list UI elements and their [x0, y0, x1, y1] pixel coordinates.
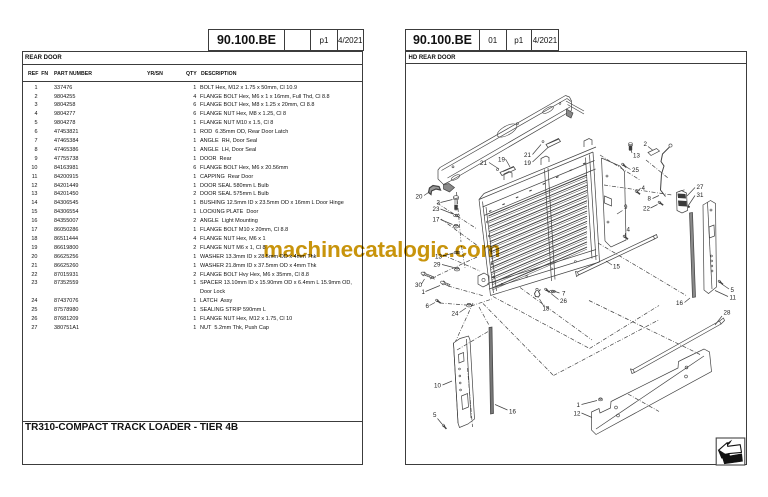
svg-text:1: 1 — [422, 289, 426, 296]
svg-text:9: 9 — [624, 204, 628, 211]
svg-text:16: 16 — [509, 409, 516, 416]
svg-text:22: 22 — [643, 206, 650, 213]
svg-text:16: 16 — [676, 300, 683, 307]
svg-text:1: 1 — [577, 402, 581, 409]
svg-text:10: 10 — [434, 383, 441, 390]
svg-text:23: 23 — [433, 206, 440, 213]
svg-text:26: 26 — [560, 298, 567, 305]
svg-text:2: 2 — [644, 141, 648, 148]
svg-text:31: 31 — [697, 192, 704, 199]
svg-text:4: 4 — [627, 227, 631, 234]
svg-text:15: 15 — [613, 264, 620, 271]
svg-text:19: 19 — [524, 160, 531, 167]
svg-text:7: 7 — [562, 291, 566, 298]
svg-text:27: 27 — [697, 184, 704, 191]
svg-text:20: 20 — [416, 194, 423, 201]
svg-text:19: 19 — [498, 157, 505, 164]
svg-text:29: 29 — [434, 262, 441, 269]
svg-text:5: 5 — [433, 412, 437, 419]
svg-text:5: 5 — [731, 287, 735, 294]
svg-text:6: 6 — [426, 303, 430, 310]
svg-text:12: 12 — [574, 411, 581, 418]
svg-text:17: 17 — [433, 217, 440, 224]
svg-text:24: 24 — [452, 311, 459, 318]
svg-text:25: 25 — [632, 167, 639, 174]
svg-text:28: 28 — [724, 310, 731, 317]
svg-text:21: 21 — [480, 160, 487, 167]
svg-text:11: 11 — [730, 295, 737, 302]
svg-text:13: 13 — [633, 153, 640, 160]
svg-text:8: 8 — [648, 196, 652, 203]
svg-text:30: 30 — [415, 282, 422, 289]
svg-text:21: 21 — [524, 152, 531, 159]
